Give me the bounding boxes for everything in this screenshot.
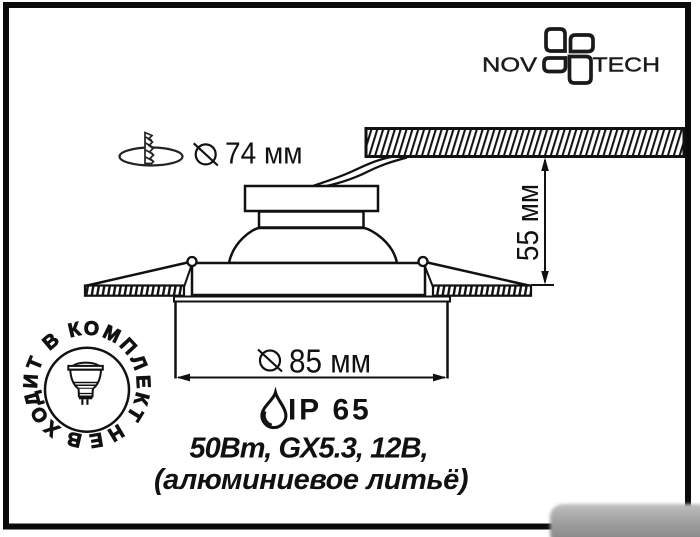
svg-text:Н: Н: [104, 419, 127, 445]
svg-text:Е: Е: [88, 428, 104, 452]
svg-text:(алюминиевое литьё): (алюминиевое литьё): [154, 464, 468, 496]
svg-text:IP 65: IP 65: [288, 394, 372, 427]
svg-text:55 мм: 55 мм: [511, 184, 546, 261]
svg-text:В: В: [39, 329, 64, 355]
svg-text:Т: Т: [23, 354, 48, 373]
svg-text:NOV: NOV: [482, 53, 538, 76]
svg-text:И: И: [20, 374, 43, 389]
svg-text:В: В: [65, 427, 84, 452]
svg-text:74 мм: 74 мм: [225, 136, 303, 170]
svg-text:Е: Е: [131, 375, 154, 389]
svg-text:50Вт, GX5.3, 12В,: 50Вт, GX5.3, 12В,: [189, 433, 427, 465]
svg-text:К: К: [66, 318, 83, 342]
svg-text:О: О: [83, 317, 100, 340]
svg-text:85 мм: 85 мм: [289, 343, 371, 380]
svg-text:TECH: TECH: [593, 54, 660, 76]
svg-text:Л: Л: [126, 352, 152, 373]
